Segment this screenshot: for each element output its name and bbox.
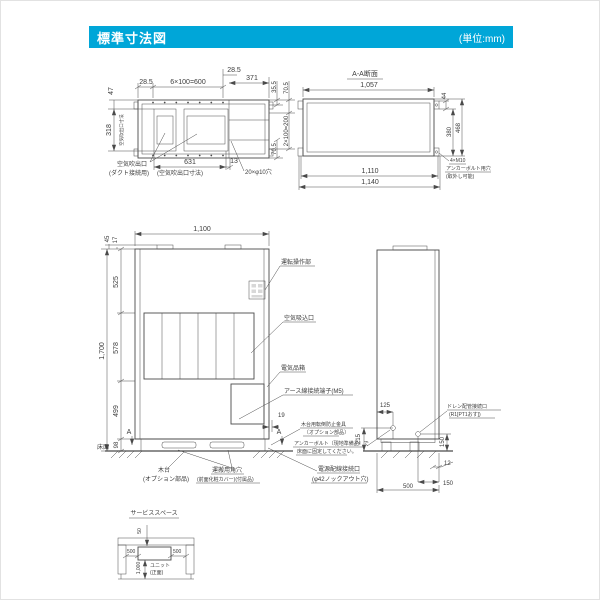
dim-1110: 1,110 <box>362 168 379 175</box>
anchor-note-2: アンカーボルト用穴 <box>446 165 491 172</box>
section-mark-right: A <box>277 429 282 436</box>
section-body <box>303 99 434 156</box>
dim-150-bottom: 150 <box>443 481 454 487</box>
anchor-bolt-note-1: アンカーボルト〔現地準備品〕で <box>294 440 369 447</box>
dim-1000: 1,000 <box>136 562 142 575</box>
air-outlet-label: 空気吹出口 <box>117 160 147 168</box>
dim-500-left: 500 <box>127 549 136 555</box>
dim-70-5-top: 70.5 <box>284 82 290 94</box>
cabinet-side <box>377 250 439 439</box>
anchor-note-3: (取外し可能) <box>446 173 475 180</box>
transport-hole-right <box>210 442 244 448</box>
anchor-bolt-hole <box>435 151 437 153</box>
drain-label: ドレン配管接続口 <box>447 403 487 410</box>
dim-20-holes: 20×φ10穴 <box>245 168 272 176</box>
dim-1100: 1,100 <box>193 226 211 233</box>
flange-bolt-holes <box>152 102 224 157</box>
dim-70-5-bottom: 70.5 <box>272 143 278 155</box>
dim-12: 12 <box>444 461 451 467</box>
air-outlet-left <box>154 109 176 151</box>
dim-1140: 1,140 <box>361 179 379 186</box>
dim-500: 500 <box>403 484 414 490</box>
cabinet-front <box>135 249 269 439</box>
floor-label: 床面 <box>97 443 109 451</box>
dimension-drawing-page: 標準寸法図 (単位:mm) <box>0 0 600 600</box>
section-title: A-A断面 <box>352 69 378 78</box>
transport-hole-sub-label: (前面化粧カバー)(付属品) <box>197 476 254 483</box>
dim-6x100: 6×100=600 <box>170 79 206 86</box>
unit-footprint <box>138 547 171 560</box>
dim-47: 47 <box>108 87 115 95</box>
service-space-drawing: サービススペース 50 500 500 1,000 ユニット (正面) <box>118 509 194 579</box>
dim-318: 318 <box>106 124 113 136</box>
dim-380: 380 <box>447 126 453 137</box>
dim-28-5-right: 28.5 <box>227 67 241 74</box>
dim-499: 499 <box>113 405 120 417</box>
wall-right <box>186 545 194 574</box>
tipover-bracket-note: 木台用転倒防止金具 <box>301 421 346 428</box>
air-outlet-dim-label: (空気吹出口寸法) <box>157 169 203 177</box>
electrical-box-label: 電気品箱 <box>281 364 305 372</box>
section-view-drawing: A-A断面 1,057 44 380 468 1,110 1,140 4×M10… <box>298 69 491 190</box>
dim-17: 17 <box>113 236 119 243</box>
dim-44: 44 <box>442 92 448 99</box>
wall-top <box>118 538 194 545</box>
dim-50: 50 <box>137 528 143 534</box>
dim-468: 468 <box>456 122 462 133</box>
front-dim-lines <box>101 231 282 453</box>
dim-371: 371 <box>246 75 258 82</box>
tipover-bracket-sub-note: 〔オプション部品〕 <box>304 429 349 436</box>
operation-panel-label: 運転操作部 <box>281 258 311 266</box>
top-view-body <box>138 100 269 158</box>
wooden-base-label: 木台 <box>158 466 170 474</box>
dim-631: 631 <box>184 159 196 166</box>
air-outlet-sub-label: (ダクト接続用) <box>109 169 149 177</box>
anchor-note-1: 4×M10 <box>450 158 466 164</box>
dim-1700: 1,700 <box>99 342 106 360</box>
wall-left <box>118 545 126 574</box>
drain-connection <box>416 432 421 437</box>
dim-500-right: 500 <box>173 549 182 555</box>
operation-panel-buttons <box>252 284 263 298</box>
transport-hole-left <box>162 442 196 448</box>
electrical-box <box>231 384 264 424</box>
anchor-bolt-note-2: 床面に固定してください。 <box>297 448 357 455</box>
dim-125: 125 <box>380 403 391 409</box>
earth-terminal-label: アース線接続端子(M5) <box>284 387 344 395</box>
side-view-drawing: 125 215 150 12 150 500 ドレン配管接続口 (R1[PT1お… <box>271 246 501 493</box>
unit-label: ユニット <box>150 563 170 569</box>
power-port-label: 電源配線接続口 <box>318 465 360 473</box>
wooden-base <box>141 439 265 451</box>
air-intake-grille <box>144 313 254 379</box>
service-space-title: サービススペース <box>130 509 177 517</box>
transport-hole-label: 運搬用角穴 <box>212 466 242 474</box>
dim-98: 98 <box>114 441 120 448</box>
dim-19: 19 <box>278 413 285 419</box>
power-port-sub-label: (φ42ノックアウト穴) <box>312 475 368 483</box>
section-mark-left: A <box>127 429 132 436</box>
dim-28-5-left: 28.5 <box>139 79 153 86</box>
dim-150-right: 150 <box>440 436 446 447</box>
dim-578: 578 <box>113 342 120 354</box>
dim-45: 45 <box>105 235 111 242</box>
dim-1057: 1,057 <box>360 82 378 89</box>
dim-13: 13 <box>230 158 238 165</box>
outlet-dim-vertical-note: 空気吹出口寸法 <box>118 114 125 146</box>
wooden-base-sub-label: (オプション部品) <box>143 475 189 483</box>
dim-35-5: 35.5 <box>272 81 278 93</box>
unit-sub-label: (正面) <box>150 570 164 576</box>
air-outlet-right <box>184 109 228 151</box>
drawing-canvas: 28.5 6×100=600 28.5 371 47 318 空気吹出口寸法 3… <box>1 1 600 600</box>
top-view-drawing: 28.5 6×100=600 28.5 371 47 318 空気吹出口寸法 3… <box>106 67 295 177</box>
dim-525: 525 <box>113 276 120 288</box>
dim-2x100: 2×100=200 <box>284 115 290 146</box>
air-intake-label: 空気吸込口 <box>284 314 314 322</box>
drain-sub-label: (R1[PT1おす]) <box>449 411 481 418</box>
